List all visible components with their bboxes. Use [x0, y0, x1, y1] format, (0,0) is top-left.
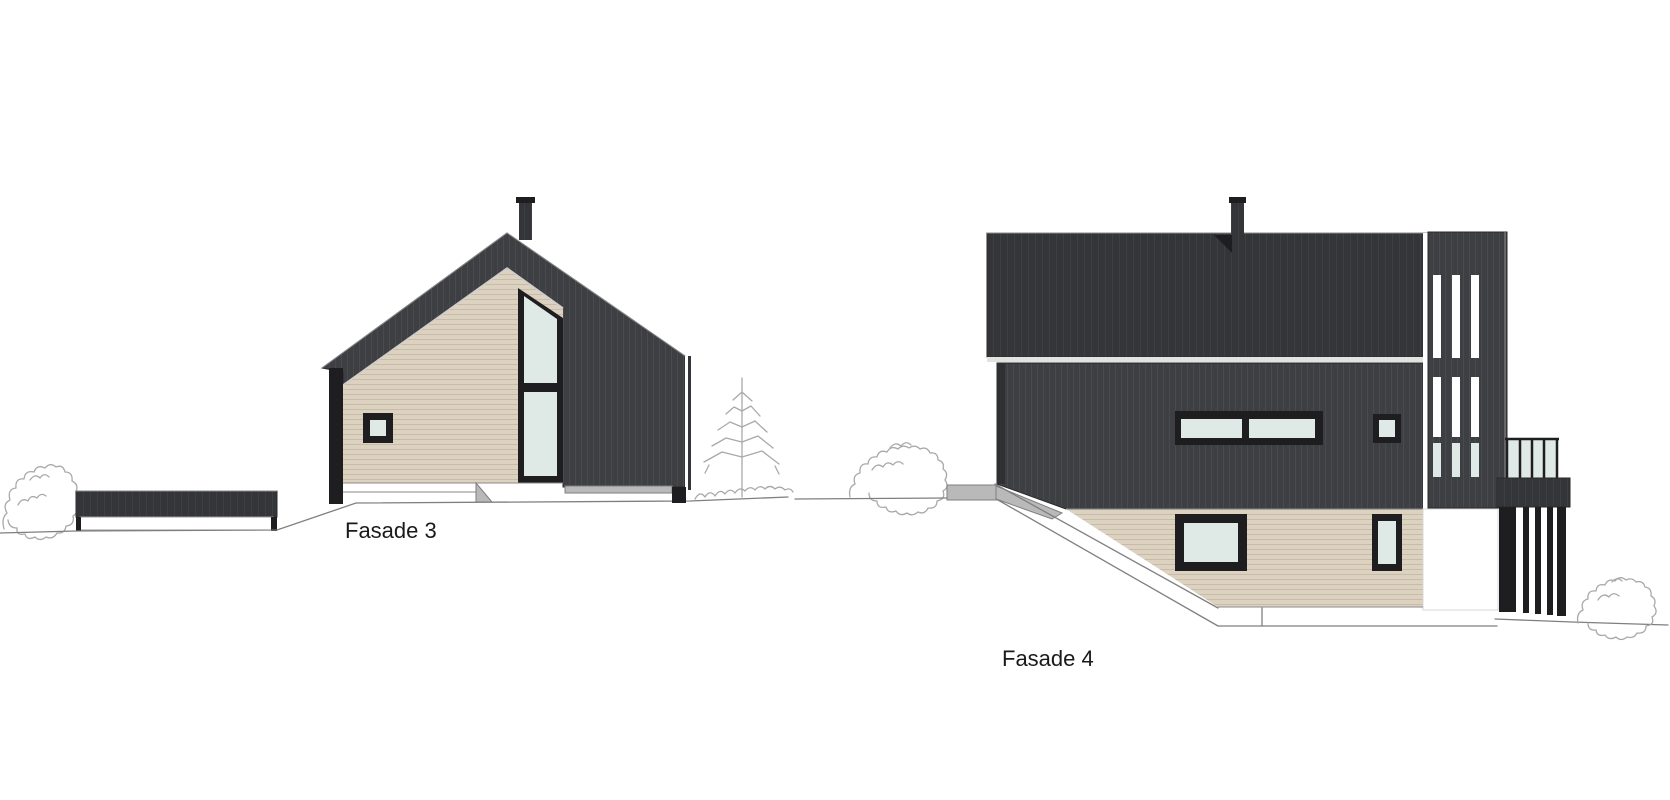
fasade4-elevation	[795, 197, 1668, 640]
fasade3-elevation	[0, 197, 793, 540]
slat-strip	[1471, 377, 1479, 437]
slat-strip	[1433, 275, 1441, 358]
tall-window	[518, 288, 563, 483]
recessed-entry	[1423, 509, 1498, 610]
window-band-pane-2	[1249, 419, 1315, 438]
volume-gap	[1423, 233, 1428, 509]
window-band	[1175, 411, 1323, 445]
slat-strip	[1452, 377, 1460, 437]
outbuilding	[76, 491, 277, 531]
slat-strip-glass	[1471, 443, 1479, 477]
porch-slat	[1523, 507, 1529, 613]
concrete-block	[947, 485, 998, 500]
square-window-glass	[370, 420, 386, 436]
main-wall-left-trim	[997, 363, 1005, 484]
fasade3-label: Fasade 3	[345, 518, 437, 544]
corner-trim-right	[688, 356, 691, 490]
basement-window-glass	[1184, 523, 1238, 562]
shed-roof-band	[76, 491, 277, 517]
slat-strip	[1433, 377, 1441, 437]
porch-slat	[1547, 507, 1553, 615]
spruce-tree-sketch	[695, 378, 793, 499]
roof-band	[987, 233, 1428, 357]
roof-band-separation	[987, 357, 1423, 362]
ground-line-right	[1495, 619, 1668, 625]
window-band-pane-1	[1181, 419, 1242, 438]
chimney	[1231, 200, 1244, 235]
elevation-drawing	[0, 0, 1670, 800]
shed-base	[80, 517, 273, 530]
balcony-railing	[1505, 439, 1559, 478]
chimney	[519, 200, 532, 240]
square-window-upper-glass	[1379, 420, 1395, 437]
slat-column	[1428, 232, 1507, 508]
square-window	[363, 413, 393, 443]
corner-gap	[685, 356, 688, 487]
square-window-upper	[1373, 414, 1401, 443]
slat-strip	[1452, 275, 1460, 358]
slat-strip-glass	[1433, 443, 1441, 477]
slat-strip-glass	[1452, 443, 1460, 477]
shrub-sketch-right-inner	[1598, 579, 1622, 600]
foundation-step	[476, 483, 492, 502]
foundation	[343, 483, 686, 503]
porch-slat	[1535, 507, 1541, 614]
fasade3-house	[322, 197, 691, 504]
slat-strip	[1471, 275, 1479, 358]
balcony-fascia	[1497, 478, 1570, 507]
foundation-block-right	[672, 487, 686, 503]
tall-window-glass-lower	[524, 392, 557, 476]
porch-post	[1557, 507, 1566, 616]
chimney-cap	[1229, 197, 1246, 203]
shed-post-right	[271, 517, 277, 531]
basement-window2-glass	[1378, 521, 1396, 564]
shrub-sketch-right	[1578, 578, 1657, 640]
chimney-cap	[516, 197, 535, 203]
fasade4-label: Fasade 4	[1002, 646, 1094, 672]
foundation-strip-right	[565, 486, 672, 493]
shed-post-left	[76, 517, 81, 531]
shrub-sketch-left	[850, 446, 948, 515]
porch-post	[1499, 507, 1516, 612]
corner-trim-left	[329, 368, 343, 504]
ground-line-left	[795, 498, 947, 499]
porch-slats	[1499, 507, 1566, 616]
